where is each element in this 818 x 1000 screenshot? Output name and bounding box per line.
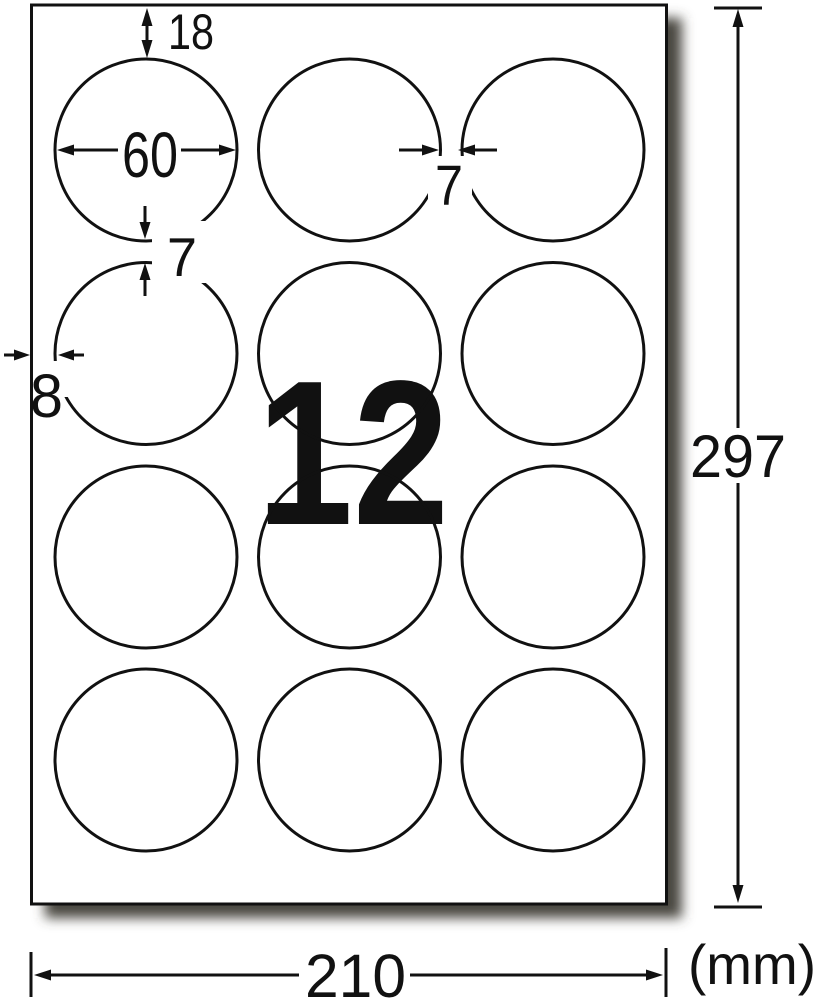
sheet-height-value: 297: [690, 423, 786, 490]
unit-label: (mm): [688, 933, 816, 996]
sheet-width-value: 210: [305, 942, 406, 1000]
left-margin-value: 8: [30, 362, 63, 430]
label-count-watermark: 12: [257, 338, 449, 568]
label-sheet-diagram: 12 18 60 7: [0, 0, 818, 1000]
label-diameter-value: 60: [122, 119, 178, 191]
row-gap-value: 7: [167, 226, 197, 288]
label-sheet-diagram-page: 12 18 60 7: [0, 0, 818, 1000]
top-margin-value: 18: [168, 4, 214, 60]
column-gap-value: 7: [435, 154, 463, 218]
